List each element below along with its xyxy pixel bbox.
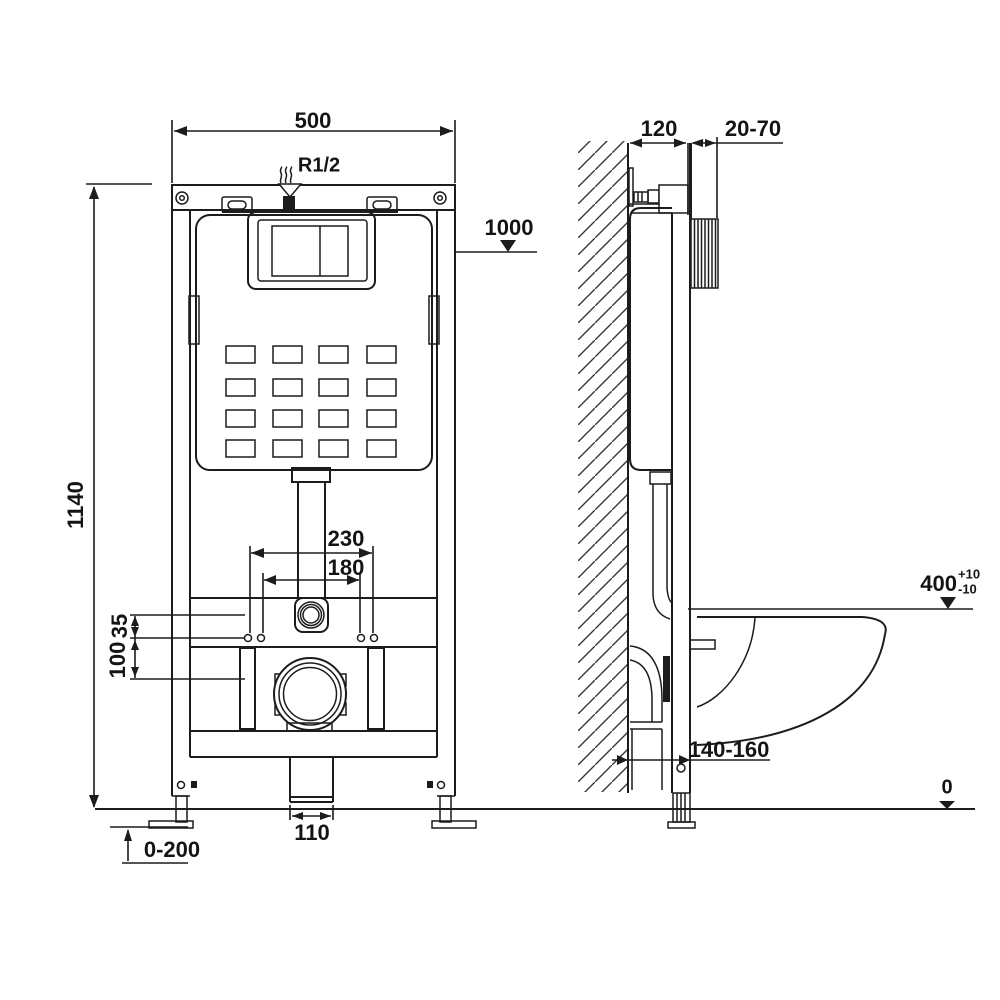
drain-socket <box>274 658 346 731</box>
foot-plate <box>432 821 476 828</box>
bracket-nut <box>648 190 659 203</box>
flush-plate-frame <box>248 212 375 289</box>
cistern-body <box>196 215 432 470</box>
dim-label: 0-200 <box>144 837 200 862</box>
dim-finish-range: 20-70 <box>691 116 783 218</box>
foot-plate <box>668 822 695 828</box>
level-0: 0 <box>939 776 955 809</box>
water-flow-icon <box>280 167 291 183</box>
inlet-elbow <box>295 598 328 632</box>
dim-label: 100 <box>105 642 130 679</box>
leg-clamp <box>427 781 433 788</box>
tab-slot <box>228 201 246 209</box>
screw-icon <box>434 192 446 204</box>
level-label: 0 <box>941 776 952 798</box>
arrow-icon <box>89 186 99 199</box>
bowl-inner-curve <box>697 618 755 707</box>
arrow-icon <box>264 575 276 585</box>
drain-gasket <box>663 656 670 702</box>
arrow-icon <box>174 126 187 136</box>
dim-label: 1140 <box>63 481 88 529</box>
bolt-hole <box>245 635 252 642</box>
screw-icon <box>438 196 443 201</box>
arrow-icon <box>131 627 139 637</box>
leg-clamp <box>191 781 197 788</box>
arrow-icon <box>440 126 453 136</box>
level-triangle-icon <box>939 801 955 809</box>
arrow-icon <box>131 667 139 677</box>
dim-label: 140-160 <box>689 737 770 762</box>
flush-pipe-profile <box>650 472 672 619</box>
arrow-icon <box>251 548 264 558</box>
screw-icon <box>176 192 188 204</box>
dim-lines <box>290 805 333 820</box>
level-1000: 1000 <box>455 215 537 252</box>
dim-label: 110 <box>294 820 330 845</box>
dim-lines <box>86 184 152 807</box>
level-triangle-icon <box>500 240 516 252</box>
dim-leg-adjustment: 0-200 <box>110 827 200 863</box>
arrow-icon <box>320 812 331 820</box>
side-view: 400 +10 -10 120 <box>578 116 980 828</box>
inlet-fitting <box>283 196 295 210</box>
dim-label: 180 <box>328 555 365 580</box>
fixing-holes <box>245 635 378 642</box>
bolt-hole <box>258 635 265 642</box>
arrow-icon <box>131 616 139 626</box>
bolt-hole <box>371 635 378 642</box>
flush-plate <box>248 212 375 289</box>
bottom-rail <box>190 731 437 757</box>
bowl-underside <box>697 634 885 745</box>
dim-label: 230 <box>328 526 365 551</box>
insulation-grid <box>226 346 396 457</box>
cistern-outline <box>630 208 672 470</box>
shaft-stripes <box>695 219 716 288</box>
inlet-funnel-icon <box>279 184 301 197</box>
rail-pin-hole <box>677 764 685 772</box>
base-and-legs <box>149 731 476 828</box>
cistern-profile <box>630 208 672 470</box>
wall-hatch <box>578 141 628 792</box>
level-label: 1000 <box>485 215 534 240</box>
bracket-bolt <box>634 192 648 202</box>
arrow-icon <box>292 812 303 820</box>
drain-outlet-pipe <box>290 757 333 802</box>
bolt-hole <box>358 635 365 642</box>
toilet-bowl-profile <box>697 617 886 745</box>
front-view: 500 R1/2 1000 1140 230 18 <box>63 108 537 863</box>
bracket-bolt-threads <box>638 192 642 202</box>
tolerance-plus: +10 <box>958 566 980 581</box>
arrow-icon <box>89 795 99 808</box>
flush-plate-inner <box>258 220 367 281</box>
dim-label: 20-70 <box>725 116 781 141</box>
bracket-lip <box>629 168 633 206</box>
dim-drain-distance: 140-160 <box>612 737 770 765</box>
drain-bend <box>630 646 685 790</box>
dim-label: 35 <box>107 614 132 638</box>
arrow-icon <box>705 139 716 147</box>
bend-curves <box>630 646 662 790</box>
level-400: 400 +10 -10 <box>688 566 980 609</box>
dim-label: 500 <box>295 108 332 133</box>
tab-slot <box>373 201 391 209</box>
leg-pin-hole <box>438 782 445 789</box>
flush-shaft-block <box>691 219 718 288</box>
level-triangle-icon <box>940 597 956 609</box>
dim-label: 120 <box>641 116 678 141</box>
side-foot <box>668 793 695 828</box>
dim-lines <box>693 137 783 218</box>
support-bracket <box>240 648 255 729</box>
leg-pin-hole <box>178 782 185 789</box>
drain-ring <box>274 658 346 730</box>
bowl-rim <box>697 617 886 634</box>
arrow-icon <box>131 640 139 650</box>
arrow-icon <box>691 139 703 147</box>
bowl-fixing-stub <box>690 640 715 649</box>
corner-screws <box>176 192 446 204</box>
installation-drawing: 500 R1/2 1000 1140 230 18 <box>0 0 1000 1000</box>
rail-lines <box>672 143 691 793</box>
level-label: 400 <box>920 571 957 596</box>
support-bracket <box>368 648 384 729</box>
arrow-icon <box>124 829 132 841</box>
inlet-thread-label: R1/2 <box>298 154 340 176</box>
dim-outlet-width: 110 <box>290 805 333 845</box>
flush-buttons <box>272 226 348 276</box>
drawing-canvas: 500 R1/2 1000 1140 230 18 <box>0 0 1000 1000</box>
tolerance-minus: -10 <box>958 581 977 596</box>
screw-icon <box>180 196 185 201</box>
dim-frame-height: 1140 <box>63 184 152 808</box>
flush-pipe <box>292 468 330 598</box>
